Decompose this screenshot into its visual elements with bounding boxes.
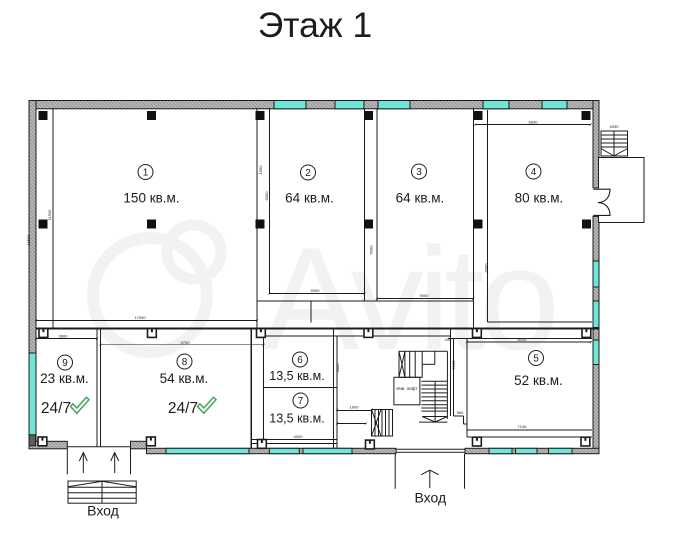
svg-text:3: 3 — [416, 167, 422, 178]
svg-text:54 кв.м.: 54 кв.м. — [160, 371, 209, 386]
svg-text:200: 200 — [445, 337, 452, 342]
svg-text:8: 8 — [182, 357, 188, 368]
svg-text:64 кв.м.: 64 кв.м. — [285, 191, 334, 206]
svg-text:13,5 кв.м.: 13,5 кв.м. — [269, 369, 324, 383]
svg-text:5: 5 — [533, 354, 539, 365]
svg-text:64 кв.м.: 64 кв.м. — [396, 191, 445, 206]
svg-text:8030: 8030 — [518, 337, 528, 342]
svg-text:7145: 7145 — [518, 424, 528, 429]
svg-text:6000: 6000 — [264, 191, 269, 201]
svg-text:560: 560 — [457, 410, 464, 415]
svg-text:6000: 6000 — [484, 263, 489, 273]
svg-text:80 кв.м.: 80 кв.м. — [515, 191, 564, 206]
svg-text:7: 7 — [298, 396, 304, 407]
svg-text:Вход: Вход — [414, 490, 446, 506]
svg-text:1050: 1050 — [258, 165, 263, 175]
svg-text:1: 1 — [143, 168, 149, 179]
svg-text:7105: 7105 — [451, 360, 456, 370]
svg-text:24/7: 24/7 — [168, 400, 198, 417]
svg-text:23 кв.м.: 23 кв.м. — [40, 371, 89, 386]
svg-text:13,5 кв.м.: 13,5 кв.м. — [269, 412, 324, 426]
svg-text:3000: 3000 — [335, 363, 340, 373]
svg-text:Вход: Вход — [87, 503, 119, 519]
svg-text:6: 6 — [297, 355, 303, 366]
svg-text:Инв. лифт: Инв. лифт — [396, 386, 417, 391]
svg-text:9700: 9700 — [181, 340, 191, 345]
svg-text:9000: 9000 — [420, 293, 430, 298]
svg-text:6830: 6830 — [529, 119, 539, 124]
svg-text:3600: 3600 — [59, 334, 69, 339]
svg-text:1900: 1900 — [350, 405, 360, 410]
svg-text:6000: 6000 — [369, 245, 374, 255]
svg-text:2: 2 — [305, 168, 311, 179]
svg-text:9: 9 — [62, 358, 68, 369]
svg-text:4930: 4930 — [610, 124, 620, 129]
svg-text:24/7: 24/7 — [41, 400, 71, 417]
svg-text:11500: 11500 — [47, 209, 52, 221]
svg-text:4: 4 — [531, 167, 537, 178]
svg-text:17090: 17090 — [134, 315, 146, 320]
svg-text:11500: 11500 — [26, 234, 31, 246]
svg-text:9000: 9000 — [311, 288, 321, 293]
svg-text:150 кв.м.: 150 кв.м. — [123, 191, 179, 206]
svg-text:52 кв.м.: 52 кв.м. — [514, 373, 563, 388]
svg-text:Этаж 1: Этаж 1 — [258, 5, 372, 45]
svg-text:4000: 4000 — [294, 434, 304, 439]
